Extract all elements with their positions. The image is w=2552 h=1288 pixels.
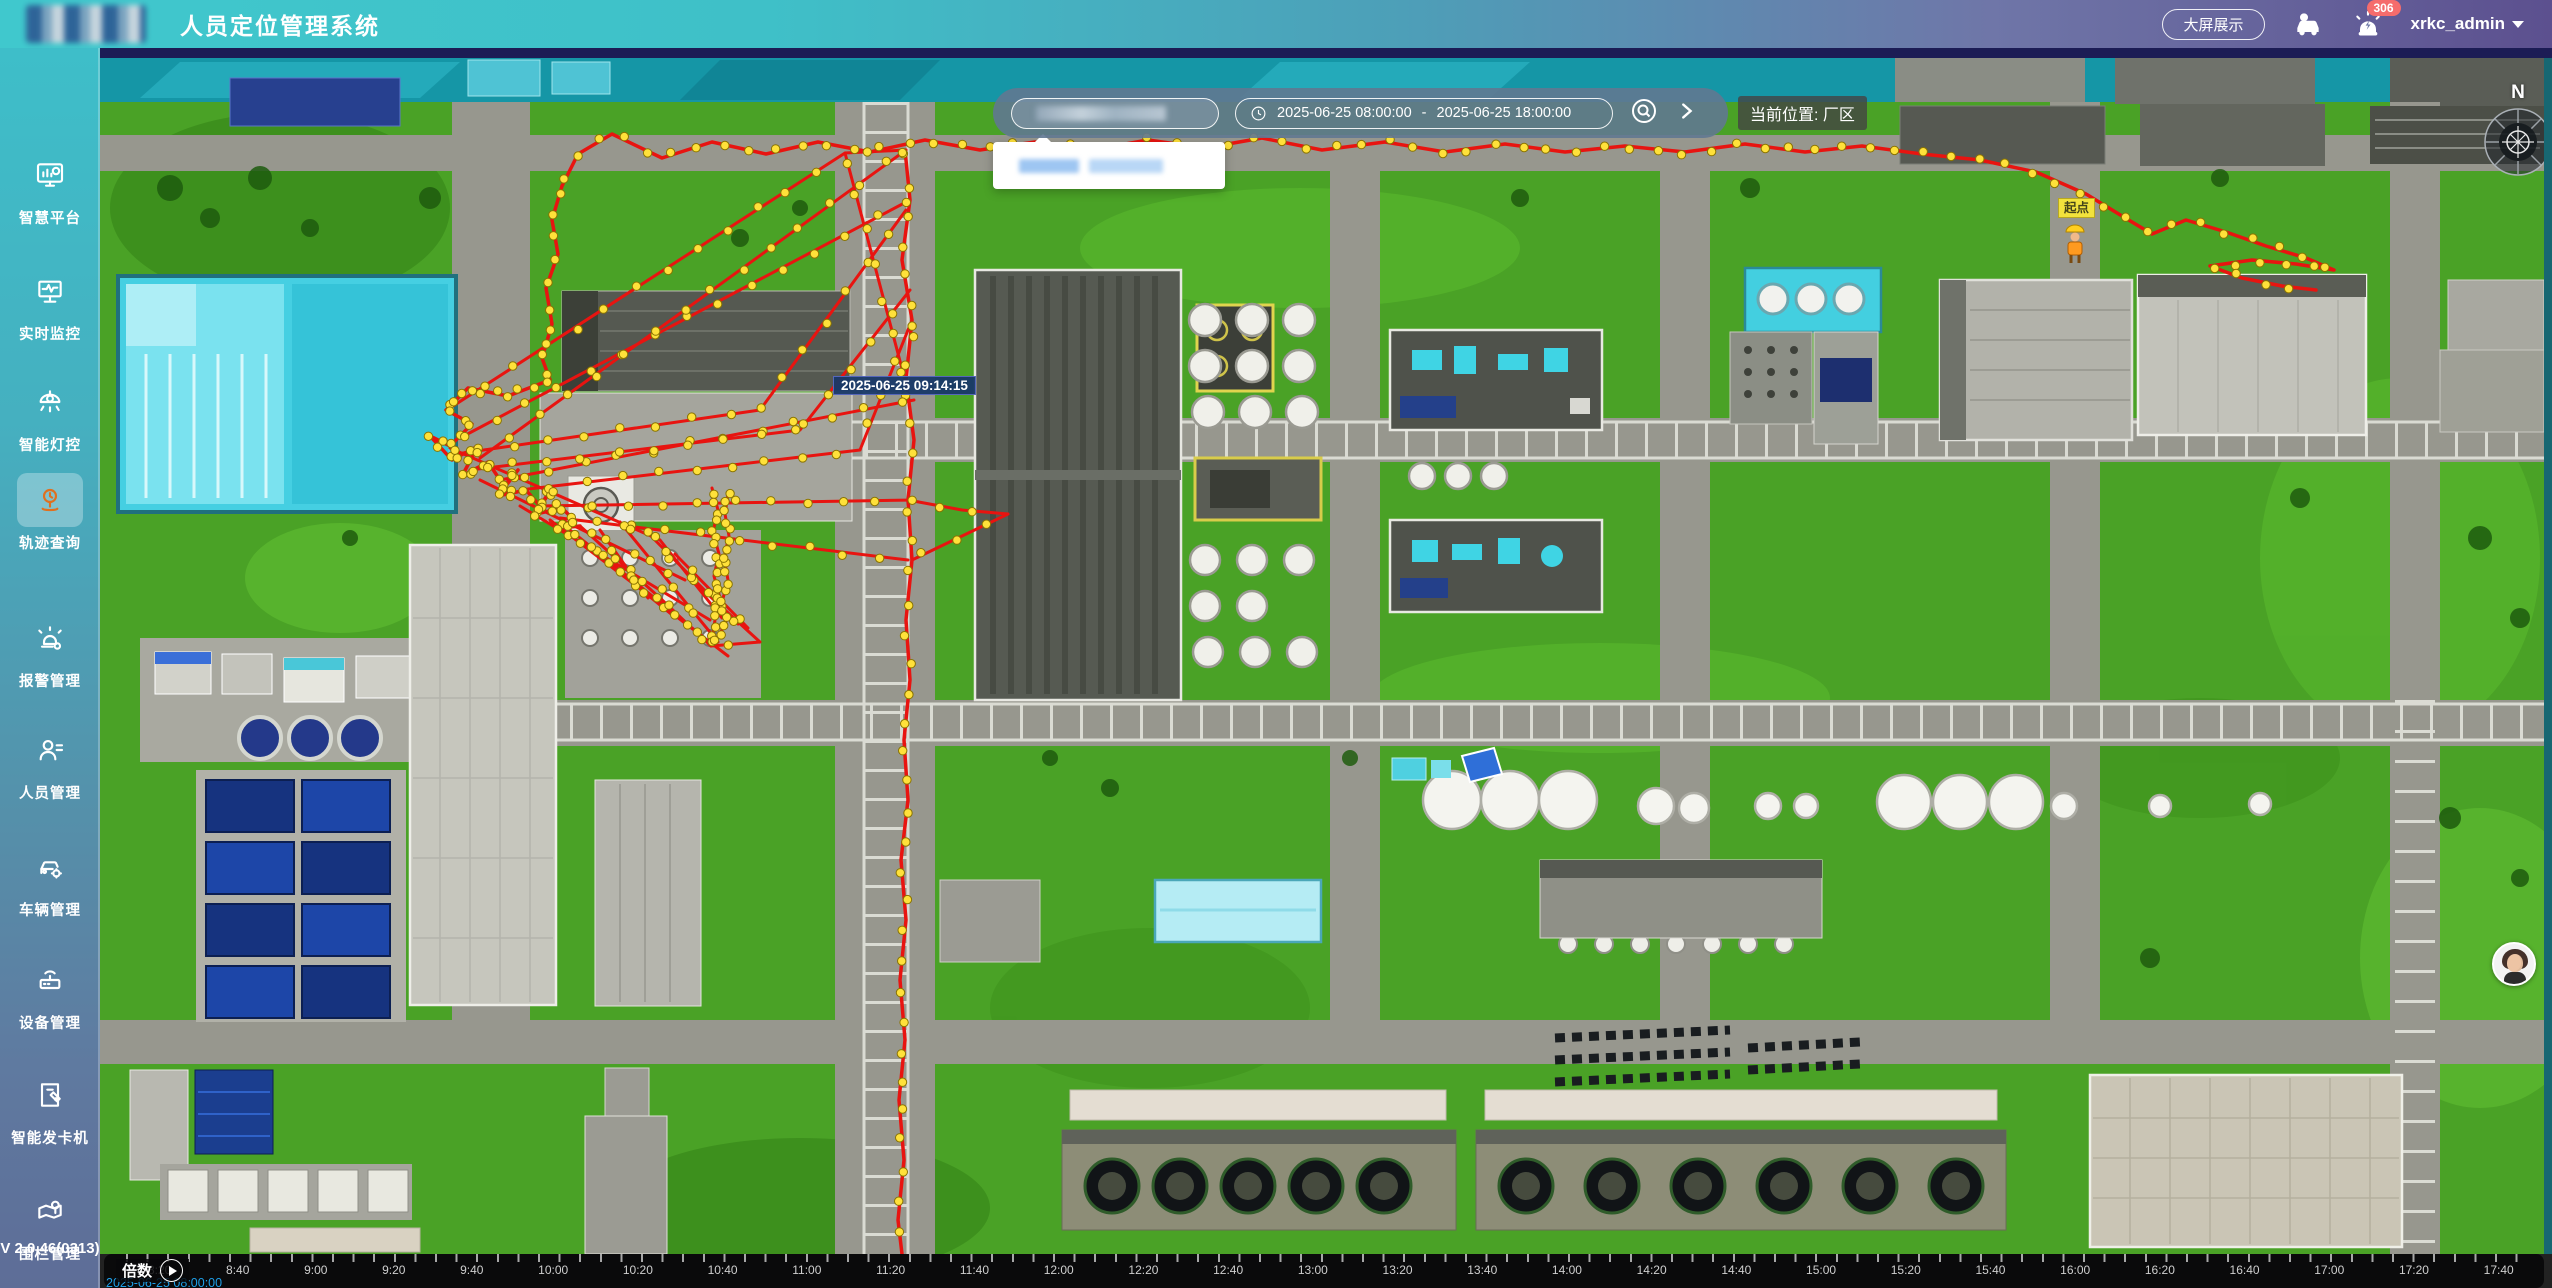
map-canvas[interactable] [100, 58, 2544, 1254]
timeline-tick[interactable]: 16:20 [2145, 1263, 2175, 1277]
timeline-tick[interactable]: 9:20 [382, 1263, 405, 1277]
car-icon [34, 851, 66, 883]
date-start: 2025-06-25 08:00:00 [1277, 105, 1412, 121]
gateway-icon [34, 964, 66, 996]
date-separator: - [1422, 105, 1427, 121]
timeline-tick[interactable]: 11:40 [960, 1263, 989, 1277]
timeline-tick[interactable]: 9:00 [304, 1263, 327, 1277]
user-menu[interactable]: xrkc_admin [2411, 14, 2525, 34]
timeline-tick[interactable]: 12:20 [1128, 1263, 1158, 1277]
timeline-tick[interactable]: 14:00 [1552, 1263, 1582, 1277]
redacted-suggestion [1089, 159, 1163, 173]
compass-dial-icon [2480, 102, 2552, 178]
compass[interactable]: N [2480, 84, 2552, 183]
sidebar-item-device-mgmt[interactable]: 设备管理 [0, 953, 100, 1033]
date-end: 2025-06-25 18:00:00 [1437, 105, 1572, 121]
timeline-tick[interactable]: 12:40 [1213, 1263, 1243, 1277]
card-dispenser-icon [34, 1079, 66, 1111]
timeline-tick[interactable]: 15:00 [1806, 1263, 1836, 1277]
person-search-input[interactable] [1011, 98, 1219, 129]
page-title: 人员定位管理系统 [180, 7, 380, 41]
vehicle-icon[interactable] [2291, 7, 2325, 41]
app-root: 人员定位管理系统 大屏展示 306 xrkc_ad [0, 0, 2552, 1288]
timeline-tick[interactable]: 10:00 [538, 1263, 568, 1277]
timeline-tick[interactable]: 14:40 [1721, 1263, 1751, 1277]
timeline-tick[interactable]: 9:40 [460, 1263, 483, 1277]
username: xrkc_admin [2411, 14, 2506, 34]
date-range-picker[interactable]: 2025-06-25 08:00:00 - 2025-06-25 18:00:0… [1235, 98, 1613, 129]
monitor-icon [34, 275, 66, 307]
version-label: V 2.0.46(0313) [0, 1240, 100, 1257]
big-screen-button[interactable]: 大屏展示 [2162, 9, 2264, 40]
person-avatar-marker[interactable] [2492, 942, 2536, 986]
timeline-tick[interactable]: 11:00 [792, 1263, 821, 1277]
geofence-icon [34, 1195, 66, 1227]
timeline-tick[interactable]: 15:20 [1891, 1263, 1921, 1277]
alarm-icon[interactable]: 306 [2351, 7, 2385, 41]
notification-badge: 306 [2367, 0, 2401, 16]
timeline-tick[interactable]: 14:20 [1637, 1263, 1667, 1277]
redacted-suggestion [1019, 159, 1079, 173]
timeline-tick[interactable]: 12:00 [1044, 1263, 1074, 1277]
timeline-tick[interactable]: 10:40 [708, 1263, 738, 1277]
play-icon [169, 1266, 177, 1276]
timeline-tick[interactable]: 11:20 [876, 1263, 905, 1277]
sidebar-item-smart-platform[interactable]: 智慧平台 [0, 148, 100, 228]
track-query-toolbar: 2025-06-25 08:00:00 - 2025-06-25 18:00:0… [993, 88, 1728, 138]
sidebar-item-realtime-monitor[interactable]: 实时监控 [0, 264, 100, 344]
timeline-tick[interactable]: 13:00 [1298, 1263, 1328, 1277]
lamp-icon [34, 386, 66, 418]
compass-north-label: N [2480, 84, 2552, 102]
timeline-tick[interactable]: 16:40 [2230, 1263, 2260, 1277]
sidebar-item-track-query[interactable]: 轨迹查询 [0, 473, 100, 553]
current-location-label: 当前位置: 厂区 [1738, 96, 1867, 130]
track-pin-icon [34, 484, 66, 516]
play-button[interactable] [160, 1259, 183, 1282]
pool [118, 276, 456, 512]
timeline-tick[interactable]: 17:40 [2484, 1263, 2514, 1277]
start-point-label: 起点 [2058, 198, 2095, 218]
company-logo [26, 5, 146, 43]
timeline-tick[interactable]: 16:00 [2060, 1263, 2090, 1277]
header-divider [96, 48, 2552, 58]
timeline-tick[interactable]: 8:40 [226, 1263, 249, 1277]
map-scrollbar[interactable] [2544, 58, 2552, 1254]
playback-timeline[interactable]: 8:208:409:009:209:4010:0010:2010:4011:00… [104, 1254, 2544, 1288]
timeline-ticks [126, 1254, 2522, 1262]
track-point-tooltip: 2025-06-25 09:14:15 [833, 376, 976, 395]
speed-label[interactable]: 倍数 [122, 1260, 152, 1281]
query-submit-button[interactable] [1675, 100, 1697, 127]
sidebar-item-vehicle-mgmt[interactable]: 车辆管理 [0, 840, 100, 920]
timeline-tick[interactable]: 10:20 [623, 1263, 653, 1277]
timeline-tick[interactable]: 17:20 [2399, 1263, 2429, 1277]
dashboard-icon [34, 159, 66, 191]
sidebar-nav: 智慧平台 实时监控 智能灯控 轨迹查询 报警管理 人员管理 车辆管理 设备管理 [0, 48, 100, 1288]
siren-icon [34, 622, 66, 654]
clock-icon [1250, 105, 1267, 122]
sidebar-item-card-machine[interactable]: 智能发卡机 [0, 1068, 100, 1148]
chevron-down-icon [2512, 21, 2524, 28]
sidebar-item-alarm-mgmt[interactable]: 报警管理 [0, 611, 100, 691]
timeline-tick[interactable]: 17:00 [2314, 1263, 2344, 1277]
search-suggestion-dropdown[interactable] [993, 142, 1225, 189]
plant-map [100, 58, 2544, 1254]
timeline-tick[interactable]: 15:40 [1975, 1263, 2005, 1277]
header-bar: 人员定位管理系统 大屏展示 306 xrkc_ad [0, 0, 2552, 48]
person-icon [34, 734, 66, 766]
timeline-tick[interactable]: 13:20 [1383, 1263, 1413, 1277]
search-locate-button[interactable] [1629, 96, 1659, 131]
timeline-tick[interactable]: 13:40 [1467, 1263, 1497, 1277]
playback-controls: 倍数 [116, 1259, 189, 1282]
sidebar-item-smart-lighting[interactable]: 智能灯控 [0, 375, 100, 455]
sidebar-item-personnel-mgmt[interactable]: 人员管理 [0, 723, 100, 803]
redacted-person-name [1036, 106, 1166, 121]
